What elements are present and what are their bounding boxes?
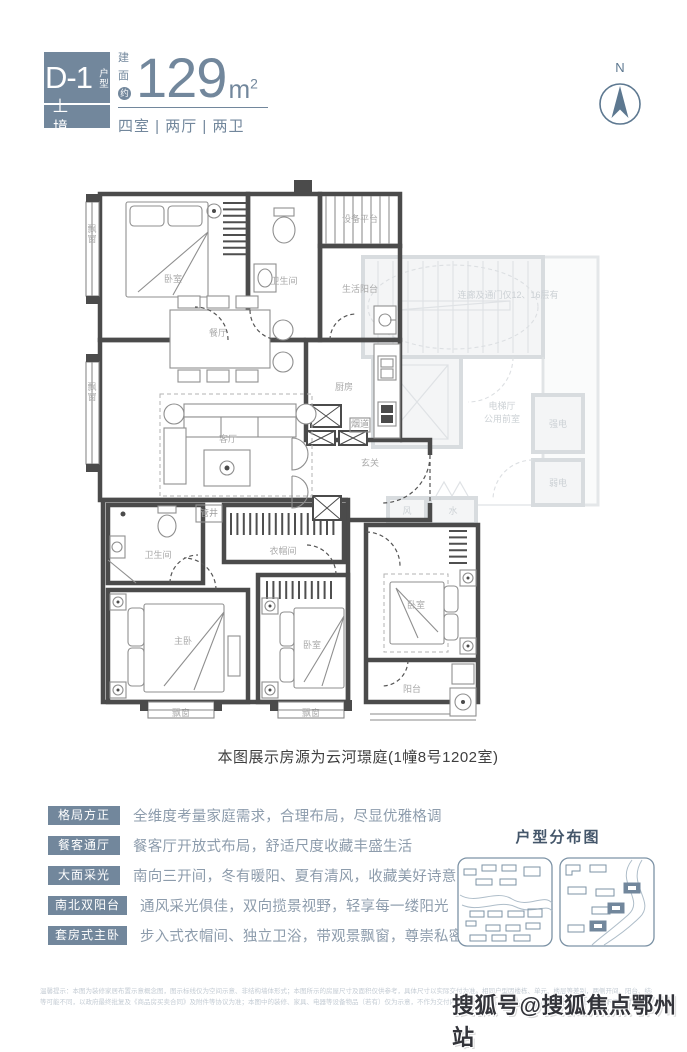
room-label: 阳台 (403, 683, 421, 694)
room-label: 卫生间 (144, 549, 171, 560)
room-label: 生活阳台 (342, 283, 378, 294)
room-label: 水 (448, 505, 457, 516)
room-label: 卧室 (407, 599, 425, 610)
unit-type-suffix: 户型 (95, 68, 109, 89)
room-label: 主卧 (174, 635, 192, 646)
compass-icon: N (592, 58, 648, 134)
room-label: 连廊及通门仅12、16层有 (457, 289, 558, 300)
feature-tag: 格局方正 (48, 806, 120, 825)
room-label: 飘窗 (87, 224, 96, 244)
area-value: 129 (136, 54, 226, 102)
feature-row: 格局方正全维度考量家庭需求，合理布局，尽显优雅格调 (48, 806, 458, 824)
room-label: 弱电 (549, 477, 567, 488)
plan-caption: 本图展示房源为云河璟庭(1幢8号1202室) (78, 746, 638, 767)
room-label: 衣帽间 (269, 545, 296, 556)
room-label: 飘窗 (87, 382, 96, 402)
compass-north-label: N (615, 60, 624, 75)
room-label: 卧室 (303, 639, 321, 650)
area-approx-circle: 约 (118, 87, 131, 100)
feature-row: 套房式主卧步入式衣帽间、独立卫浴，带观景飘窗，尊崇私密享受 (48, 926, 458, 944)
feature-tag: 南北双阳台 (48, 896, 127, 915)
area-main: 建 面 约 129 m2 (118, 52, 268, 108)
room-label: 设备平台 (342, 213, 378, 224)
room-label: 卧室 (164, 273, 182, 284)
feature-list: 格局方正全维度考量家庭需求，合理布局，尽显优雅格调餐客通厅餐客厅开放式布局，舒适… (48, 806, 458, 956)
compass-needle (612, 86, 629, 118)
room-label: 烟道 (351, 418, 369, 429)
room-label: 飘窗 (172, 707, 190, 718)
feature-description: 通风采光俱佳，双向揽景视野，轻享每一缕阳光 (140, 895, 449, 916)
unit-type-badge: D-1 户型 上 境 (44, 52, 110, 128)
feature-description: 全维度考量家庭需求，合理布局，尽显优雅格调 (133, 805, 442, 826)
bed (144, 604, 224, 692)
page: D-1 户型 上 境 建 面 约 129 m2 四室 | 两厅 | 两卫 N (0, 0, 687, 1021)
room-count-line: 四室 | 两厅 | 两卫 (118, 115, 268, 136)
room-label: 风 (402, 506, 411, 516)
distribution-title: 户型分布图 (452, 826, 664, 847)
room-label: 卫生间 (270, 275, 297, 286)
area-unit: m2 (228, 76, 257, 102)
feature-tag: 餐客通厅 (48, 836, 120, 855)
room-label: 餐厅 (209, 327, 227, 338)
feature-tag: 套房式主卧 (48, 926, 127, 945)
area-prefix-char: 建 (118, 52, 131, 64)
toilet (158, 515, 176, 537)
room-label: 飘窗 (302, 707, 320, 718)
feature-tag: 大面采光 (48, 866, 120, 885)
room-label: 厨房 (335, 381, 353, 392)
room-label: 强电 (549, 418, 567, 429)
area-prefix-char: 面 (118, 70, 131, 82)
area-prefix: 建 面 约 (118, 52, 131, 100)
room-label: 客厅 (219, 433, 237, 444)
toilet (274, 208, 294, 216)
unit-type-code: D-1 (45, 62, 92, 93)
room-label: 公用前室 (484, 413, 520, 424)
floor-plan: 飘窗卧室卫生间设备平台生活阳台餐厅厨房客厅飘窗玄关烟道管井衣帽间卫生间主卧卧室卧… (78, 162, 610, 744)
area-block: 建 面 约 129 m2 四室 | 两厅 | 两卫 (118, 52, 268, 136)
room-label: 电梯厅 (488, 400, 515, 411)
feature-description: 南向三开间，冬有暖阳、夏有清风，收藏美好诗意 (133, 865, 456, 886)
feature-description: 餐客厅开放式布局，舒适尺度收藏丰盛生活 (133, 835, 412, 856)
feature-description: 步入式衣帽间、独立卫浴，带观景飘窗，尊崇私密享受 (140, 925, 493, 946)
site-plan (456, 855, 660, 949)
distribution-map: 户型分布图 (452, 826, 664, 954)
watermark: 搜狐号@搜狐焦点鄂州站 (452, 988, 687, 1052)
feature-row: 南北双阳台通风采光俱佳，双向揽景视野，轻享每一缕阳光 (48, 896, 458, 914)
unit-type-series: 上 境 (44, 103, 110, 126)
feature-row: 大面采光南向三开间，冬有暖阳、夏有清风，收藏美好诗意 (48, 866, 458, 884)
wall-pier (294, 180, 312, 194)
sofa (184, 404, 296, 417)
room-label: 管井 (200, 507, 218, 518)
room-label: 玄关 (361, 457, 379, 468)
feature-row: 餐客通厅餐客厅开放式布局，舒适尺度收藏丰盛生活 (48, 836, 458, 854)
